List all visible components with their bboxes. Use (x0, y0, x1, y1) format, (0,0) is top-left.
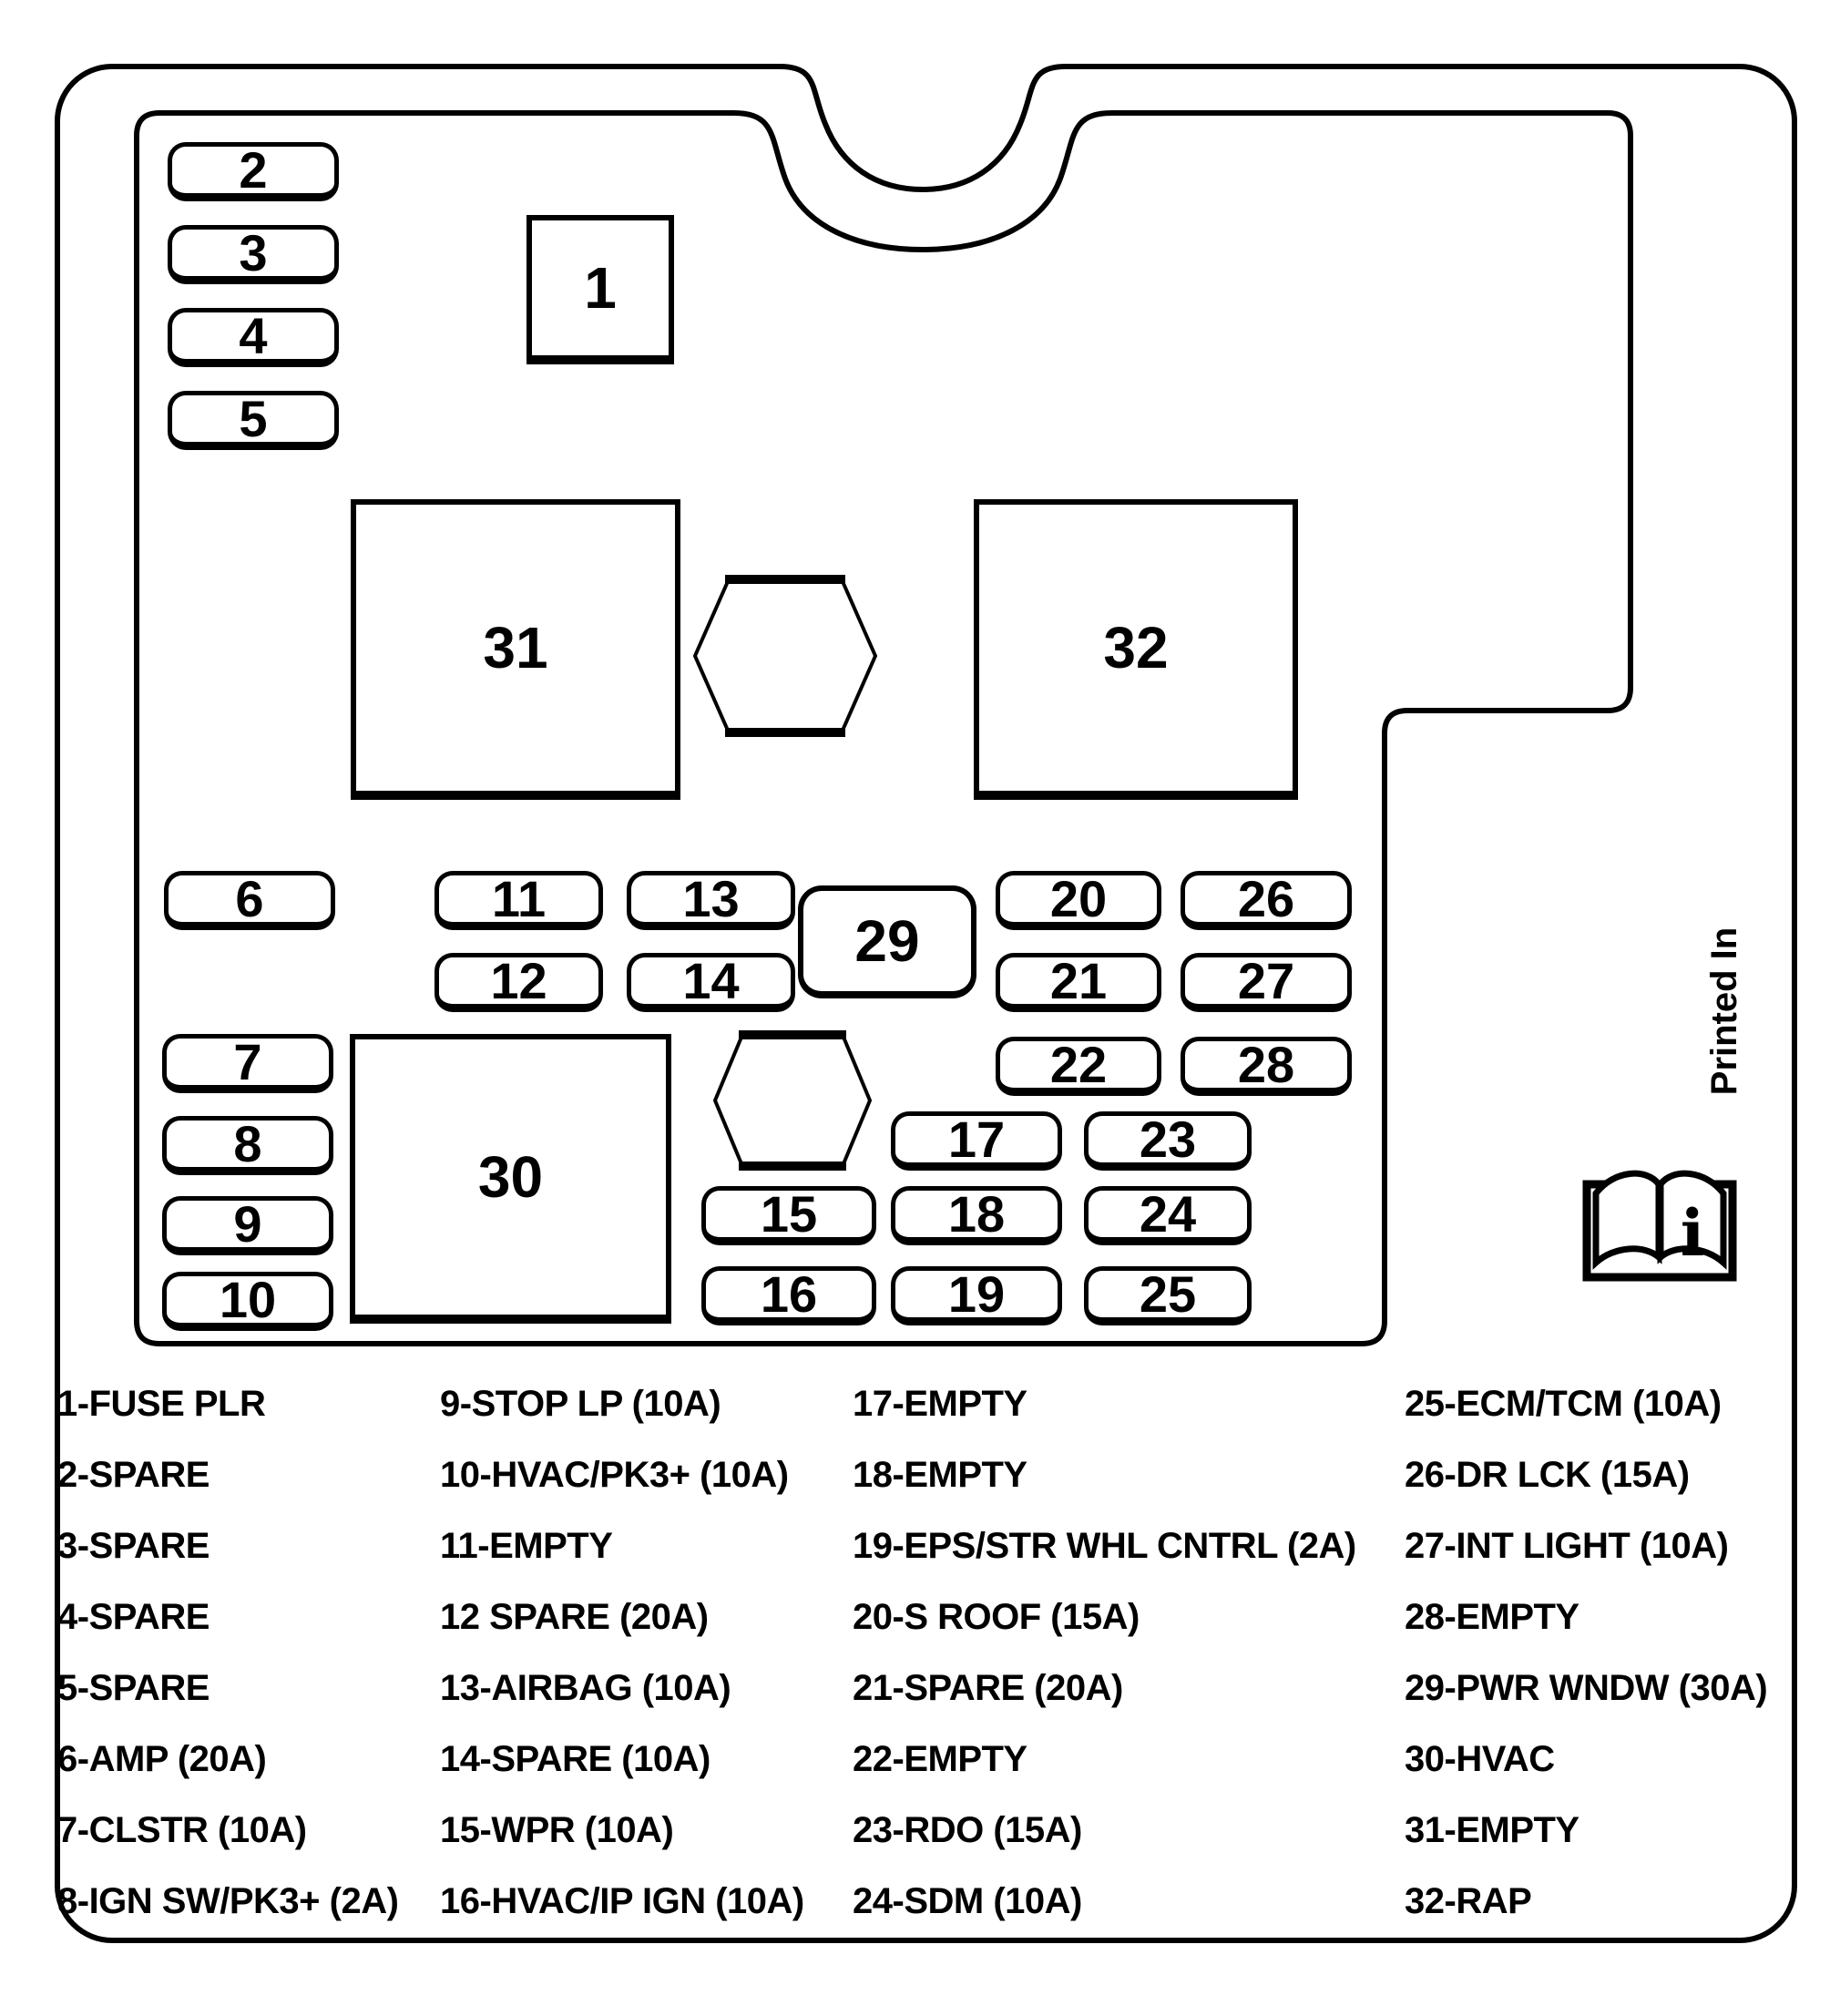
legend-entry: 20-S ROOF (15A) (853, 1596, 1399, 1667)
legend-entry: 25-ECM/TCM (10A) (1405, 1383, 1805, 1454)
fuse-23: 23 (1084, 1111, 1252, 1171)
fuse-20: 20 (996, 871, 1161, 930)
fuse-13: 13 (627, 871, 795, 930)
fuse-4: 4 (168, 308, 339, 367)
owner-manual-book-icon: i (1587, 1173, 1733, 1277)
fuse-18: 18 (891, 1186, 1062, 1245)
fuse-25: 25 (1084, 1266, 1252, 1325)
fuse-24: 24 (1084, 1186, 1252, 1245)
fuse-3: 3 (168, 225, 339, 284)
fuse-9: 9 (162, 1196, 333, 1255)
legend-entry: 30-HVAC (1405, 1738, 1805, 1809)
legend-entry: 5-SPARE (57, 1667, 435, 1738)
fuse-28: 28 (1181, 1037, 1352, 1096)
module-30: 30 (350, 1034, 671, 1324)
fuse-21: 21 (996, 953, 1161, 1012)
legend-entry: 2-SPARE (57, 1454, 435, 1525)
module-32: 32 (974, 499, 1298, 800)
fuse-6: 6 (164, 871, 335, 930)
legend-entry: 27-INT LIGHT (10A) (1405, 1525, 1805, 1596)
legend-column-1: 1-FUSE PLR 2-SPARE 3-SPARE 4-SPARE 5-SPA… (57, 1383, 435, 1951)
printed-in-label: Printed In (1702, 875, 1746, 1148)
legend-column-2: 9-STOP LP (10A) 10-HVAC/PK3+ (10A) 11-EM… (440, 1383, 848, 1951)
bolt-hexagon-lower (715, 1035, 870, 1166)
legend-entry: 3-SPARE (57, 1525, 435, 1596)
fuse-box-diagram-page: i 1 2 3 4 5 31 32 30 29 6 7 8 9 10 11 12… (0, 0, 1840, 2016)
fuse-14: 14 (627, 953, 795, 1012)
relay-29: 29 (798, 885, 976, 998)
legend-column-3: 17-EMPTY 18-EMPTY 19-EPS/STR WHL CNTRL (… (853, 1383, 1399, 1951)
legend-entry: 23-RDO (15A) (853, 1809, 1399, 1880)
legend-entry: 28-EMPTY (1405, 1596, 1805, 1667)
fuse-11: 11 (434, 871, 603, 930)
legend-entry: 12 SPARE (20A) (440, 1596, 848, 1667)
legend-entry: 32-RAP (1405, 1880, 1805, 1951)
fuse-26: 26 (1181, 871, 1352, 930)
fuse-15: 15 (701, 1186, 876, 1245)
legend-entry: 29-PWR WNDW (30A) (1405, 1667, 1805, 1738)
legend-entry: 18-EMPTY (853, 1454, 1399, 1525)
legend-column-4: 25-ECM/TCM (10A) 26-DR LCK (15A) 27-INT … (1405, 1383, 1805, 1951)
fuse-puller-1: 1 (526, 215, 674, 364)
legend-entry: 21-SPARE (20A) (853, 1667, 1399, 1738)
legend-entry: 1-FUSE PLR (57, 1383, 435, 1454)
book-info-glyph: i (1681, 1195, 1705, 1271)
legend-entry: 4-SPARE (57, 1596, 435, 1667)
legend-entry: 15-WPR (10A) (440, 1809, 848, 1880)
fuse-27: 27 (1181, 953, 1352, 1012)
fuse-5: 5 (168, 391, 339, 450)
fuse-8: 8 (162, 1116, 333, 1175)
legend-entry: 24-SDM (10A) (853, 1880, 1399, 1951)
fuse-10: 10 (162, 1272, 333, 1331)
legend-entry: 7-CLSTR (10A) (57, 1809, 435, 1880)
fuse-22: 22 (996, 1037, 1161, 1096)
bolt-hexagon-upper (695, 579, 875, 732)
fuse-2: 2 (168, 142, 339, 201)
fuse-19: 19 (891, 1266, 1062, 1325)
legend-entry: 9-STOP LP (10A) (440, 1383, 848, 1454)
legend-entry: 13-AIRBAG (10A) (440, 1667, 848, 1738)
legend-entry: 16-HVAC/IP IGN (10A) (440, 1880, 848, 1951)
legend-entry: 11-EMPTY (440, 1525, 848, 1596)
legend-entry: 6-AMP (20A) (57, 1738, 435, 1809)
legend-entry: 10-HVAC/PK3+ (10A) (440, 1454, 848, 1525)
legend-entry: 22-EMPTY (853, 1738, 1399, 1809)
fuse-17: 17 (891, 1111, 1062, 1171)
fuse-7: 7 (162, 1034, 333, 1093)
legend-entry: 31-EMPTY (1405, 1809, 1805, 1880)
module-31: 31 (351, 499, 680, 800)
legend-entry: 14-SPARE (10A) (440, 1738, 848, 1809)
legend-entry: 17-EMPTY (853, 1383, 1399, 1454)
fuse-12: 12 (434, 953, 603, 1012)
legend-entry: 19-EPS/STR WHL CNTRL (2A) (853, 1525, 1399, 1596)
fuse-16: 16 (701, 1266, 876, 1325)
legend-entry: 26-DR LCK (15A) (1405, 1454, 1805, 1525)
legend-entry: 8-IGN SW/PK3+ (2A) (57, 1880, 435, 1951)
